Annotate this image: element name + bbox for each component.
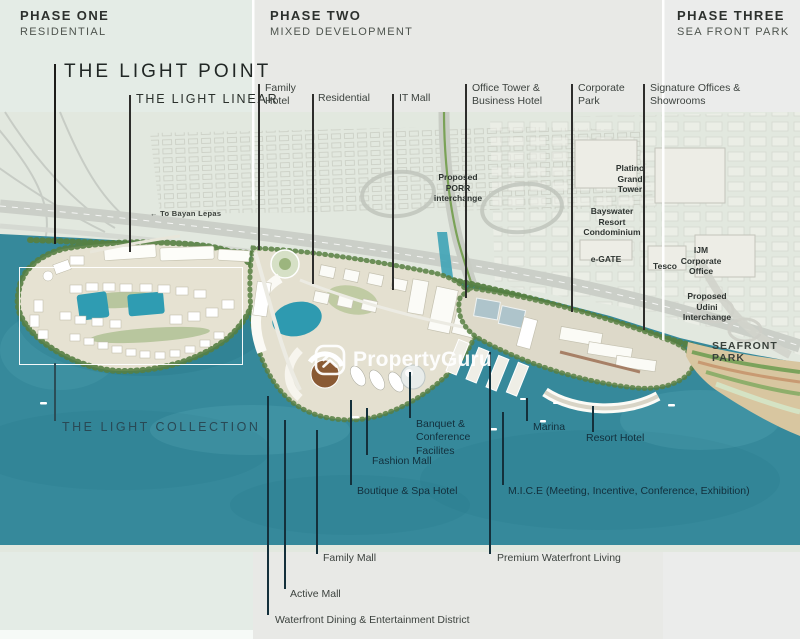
boutique-spa-label: Boutique & Spa Hotel <box>357 485 457 498</box>
ijm-label: IJM Corporate Office <box>681 245 722 277</box>
office-tower-label: Office Tower & Business Hotel <box>472 82 542 109</box>
corporate-park-label: Corporate Park <box>578 82 625 109</box>
banquet-label: Banquet & Conference Facilites <box>416 418 470 458</box>
phase-one-title: PHASE ONE <box>20 8 109 23</box>
fashion-mall-label: Fashion Mall <box>372 455 432 468</box>
residential-label: Residential <box>318 92 370 105</box>
udini-label: Proposed Udini Interchange <box>683 291 731 323</box>
it-mall-leader <box>392 94 394 290</box>
seafront-park-label: SEAFRONT PARK <box>712 340 800 364</box>
resort-hotel-label: Resort Hotel <box>586 432 644 445</box>
fashion-mall-leader <box>366 408 368 455</box>
bottom-left-margin <box>0 630 253 639</box>
propertyguru-logo-icon <box>314 344 346 376</box>
light-collection-title: THE LIGHT COLLECTION <box>62 420 260 434</box>
phase-two-title: PHASE TWO <box>270 8 413 23</box>
phase-one-header: PHASE ONE RESIDENTIAL <box>20 8 109 38</box>
tesco-label: Tesco <box>653 261 677 272</box>
marina-leader <box>526 398 528 421</box>
porr-label: Proposed PORR interchange <box>434 172 482 204</box>
banquet-leader <box>409 372 411 418</box>
family-mall-label: Family Mall <box>323 552 376 565</box>
boutique-spa-leader <box>350 400 352 485</box>
light-point-title: THE LIGHT POINT <box>64 61 271 83</box>
mice-label: M.I.C.E (Meeting, Incentive, Conference,… <box>508 485 750 498</box>
waterfront-dining-leader <box>267 396 269 615</box>
premium-waterfront-label: Premium Waterfront Living <box>497 552 621 565</box>
egate-label: e-GATE <box>591 254 622 265</box>
family-mall-leader <box>316 430 318 554</box>
propertyguru-watermark-text: PropertyGuru <box>353 348 492 372</box>
residential-leader <box>312 94 314 284</box>
active-mall-label: Active Mall <box>290 588 341 601</box>
light-point-leader <box>54 64 56 244</box>
waterfront-dining-label: Waterfront Dining & Entertainment Distri… <box>275 614 470 627</box>
bayan-lepas-road-sign: ← To Bayan Lepas <box>150 209 221 218</box>
phase-three-header: PHASE THREE SEA FRONT PARK <box>677 8 790 38</box>
phase-three-subtitle: SEA FRONT PARK <box>677 26 790 38</box>
phase-three-title: PHASE THREE <box>677 8 790 23</box>
phase-two-subtitle: MIXED DEVELOPMENT <box>270 26 413 38</box>
corporate-park-leader <box>571 84 573 312</box>
marina-label: Marina <box>533 421 565 434</box>
light-collection-leader <box>54 363 56 421</box>
light-linear-leader <box>129 95 131 252</box>
light-collection-box <box>19 267 243 365</box>
premium-waterfront-leader <box>489 352 491 554</box>
masterplan-map: PHASE ONE RESIDENTIAL PHASE TWO MIXED DE… <box>0 0 800 639</box>
bayswater-label: Bayswater Resort Condominium <box>583 206 640 238</box>
propertyguru-watermark: PropertyGuru <box>314 344 492 376</box>
it-mall-label: IT Mall <box>399 92 430 105</box>
phase-one-subtitle: RESIDENTIAL <box>20 26 109 38</box>
resort-hotel-leader <box>592 406 594 432</box>
signature-offices-leader <box>643 84 645 330</box>
phase-two-header: PHASE TWO MIXED DEVELOPMENT <box>270 8 413 38</box>
signature-offices-label: Signature Offices & Showrooms <box>650 82 740 109</box>
active-mall-leader <box>284 420 286 589</box>
mice-leader <box>502 412 504 485</box>
family-hotel-leader <box>258 84 260 250</box>
family-hotel-label: Family Hotel <box>265 82 296 109</box>
platino-label: Platino Grand Tower <box>616 163 644 195</box>
